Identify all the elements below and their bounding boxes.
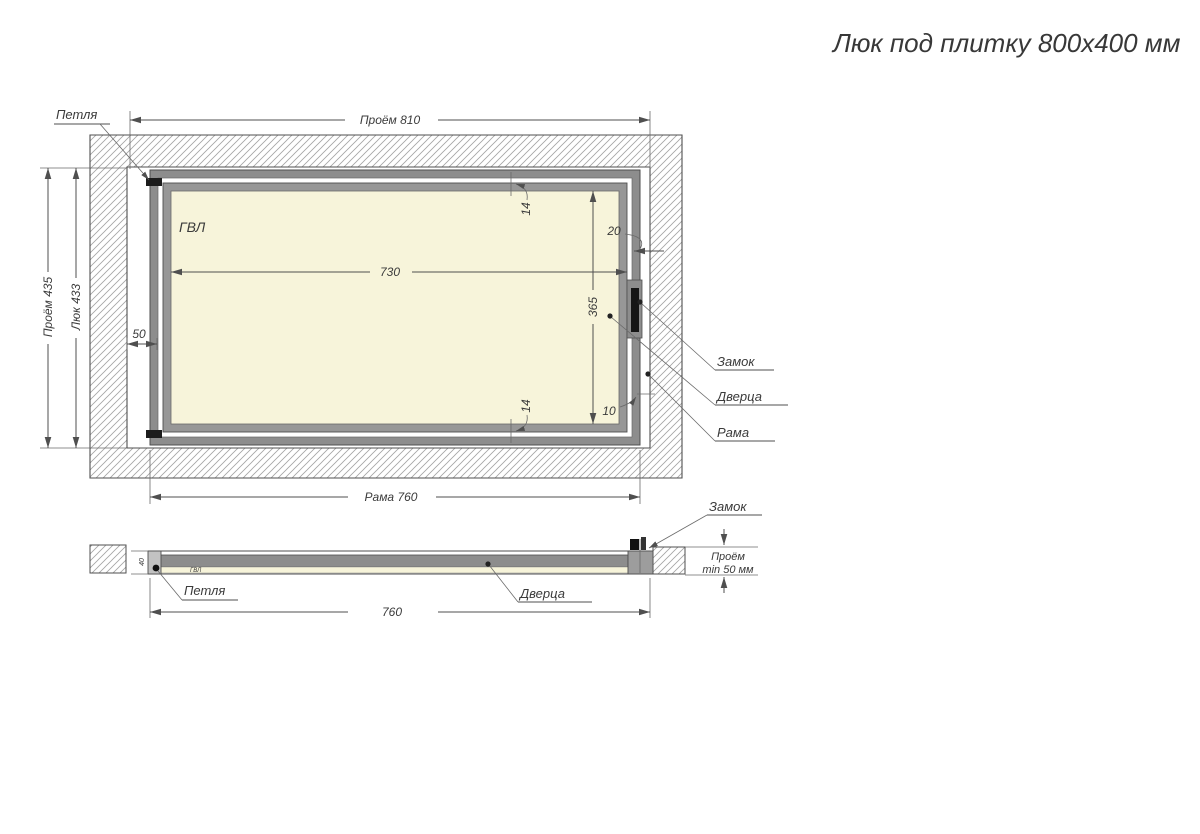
frame-profile-right — [628, 551, 653, 574]
lock — [631, 288, 639, 332]
drawing-title: Люк под плитку 800х400 мм — [831, 28, 1181, 58]
hinge-label: Петля — [56, 107, 97, 122]
clearance-dim: Проём min 50 мм — [685, 529, 758, 593]
dim-opening-height-text: Проём 435 — [41, 277, 55, 338]
door-slab-section — [160, 555, 628, 567]
side-view: ГВЛ 40 Петля Дверца Замок — [90, 499, 762, 619]
lock-section — [630, 539, 639, 550]
lock-callout-side: Замок — [649, 499, 762, 548]
lock-latch-section — [641, 537, 646, 550]
gvl-strip-section — [160, 567, 628, 573]
frame-label: Рама — [717, 425, 749, 440]
dim-gap-right-bottom-text: 10 — [602, 404, 616, 418]
hinge-section — [153, 565, 160, 572]
top-view: ГВЛ Проём 810 Проём 435 Люк 433 — [40, 107, 788, 504]
lock-label-side: Замок — [709, 499, 747, 514]
gvl-section-label: ГВЛ — [190, 568, 202, 574]
dim-depth-text: 40 — [139, 558, 146, 566]
door-label: Дверца — [715, 389, 762, 404]
hinge-callout-side: Петля — [158, 571, 238, 600]
clearance-line2: min 50 мм — [702, 564, 754, 576]
hinge-bottom — [146, 430, 162, 438]
door-label-side: Дверца — [518, 586, 565, 601]
lock-label: Замок — [717, 354, 755, 369]
dim-gap-bottom-text: 14 — [519, 399, 533, 413]
drawing-page: Люк под плитку 800х400 мм ГВЛ Проём 810 — [0, 0, 1200, 834]
dim-frame-width-side-text: 760 — [382, 605, 402, 619]
dim-offset-left-text: 50 — [132, 327, 146, 341]
clearance-line1: Проём — [711, 551, 745, 563]
wall-section-left — [90, 545, 126, 573]
gvl-label: ГВЛ — [179, 219, 206, 235]
door-panel — [171, 191, 619, 424]
dim-frame-width-text: Рама 760 — [365, 490, 418, 504]
dim-door-width-text: 730 — [380, 265, 400, 279]
dim-gap-top-text: 14 — [519, 202, 533, 216]
dim-opening-width-text: Проём 810 — [360, 113, 421, 127]
technical-drawing: Люк под плитку 800х400 мм ГВЛ Проём 810 — [0, 0, 1200, 834]
dim-door-height-text: 365 — [586, 297, 600, 317]
dim-gap-right-top-text: 20 — [606, 224, 621, 238]
wall-section-right — [653, 547, 685, 574]
hinge-label-side: Петля — [184, 583, 225, 598]
dim-hatch-height-text: Люк 433 — [69, 284, 83, 332]
